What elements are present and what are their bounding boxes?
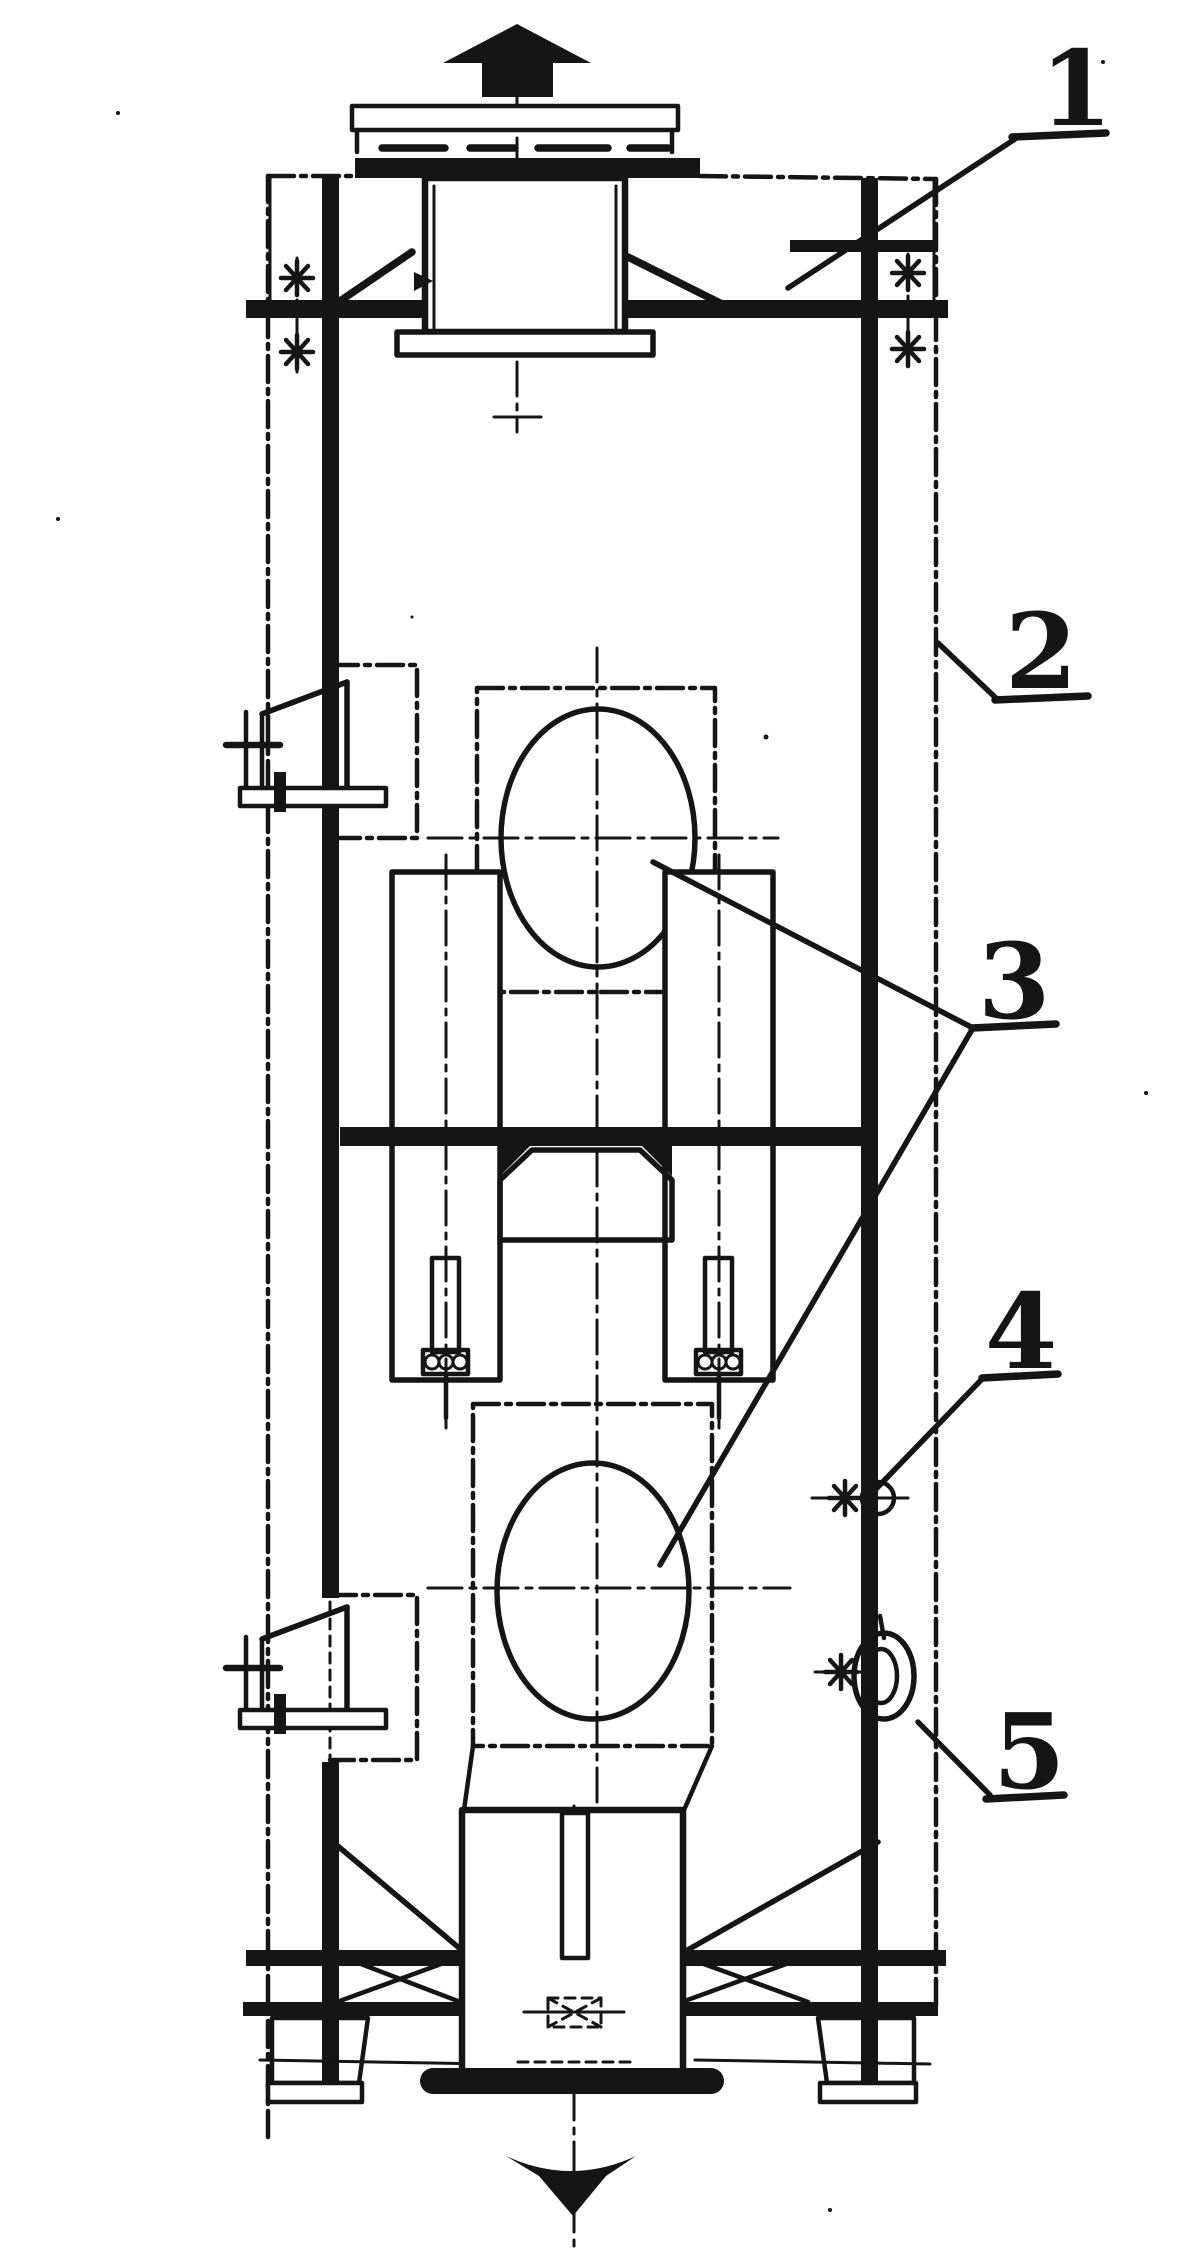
hopper-flange-bar: [420, 2068, 724, 2094]
upper-left-bracket: [226, 665, 417, 838]
callout-label-4: 4: [985, 1270, 1057, 1393]
bottom-rail-lower-right: [683, 2002, 938, 2016]
bottom-hopper: [420, 1810, 724, 2094]
top-beam: [355, 158, 700, 178]
lower-left-bracket: [226, 1595, 417, 1760]
side-fitting-upper: [812, 1481, 908, 1515]
callout-label-1: 1: [1040, 27, 1112, 150]
top-flange-plate: [352, 106, 678, 130]
bracket-base-plate: [240, 788, 386, 806]
assembly-drawing: 1 2 3 4 5: [0, 0, 1190, 2250]
callout-4: 4: [876, 1270, 1058, 1489]
leader-line: [938, 643, 998, 700]
callout-label-5: 5: [993, 1690, 1065, 1813]
bottom-brace-right: [684, 1842, 878, 1952]
bottom-rail-lower-left: [243, 2002, 462, 2016]
middle-belt: [340, 1127, 862, 1146]
lower-rotor-oval: [497, 1463, 689, 1719]
nozzle-body: [425, 178, 625, 332]
nozzle-bottom-lip: [397, 332, 653, 355]
down-arrow-icon: [506, 2156, 636, 2216]
drawing-sheet: 1 2 3 4 5: [0, 0, 1190, 2250]
bracket-base-plate: [240, 1710, 386, 1728]
top-rail-right: [628, 300, 948, 318]
leader-line: [918, 1722, 990, 1795]
callout-label-3: 3: [978, 920, 1050, 1043]
left-column-upper: [322, 178, 339, 1598]
top-brace-left: [340, 252, 412, 301]
belt-housing: [500, 1150, 672, 1240]
right-column: [861, 178, 878, 2084]
bottom-rail-upper-right: [683, 1950, 946, 1966]
lower-rotor-phantom-box: [473, 1404, 712, 1746]
lower-rotor: [428, 1404, 790, 1810]
hopper-body: [462, 1810, 683, 2075]
bottom-brace-left: [333, 1842, 464, 1952]
leader-line: [876, 1378, 983, 1489]
callout-5: 5: [918, 1690, 1065, 1813]
left-column-lower: [322, 1762, 339, 2084]
callout-2: 2: [938, 590, 1088, 713]
callout-label-2: 2: [1005, 590, 1077, 713]
